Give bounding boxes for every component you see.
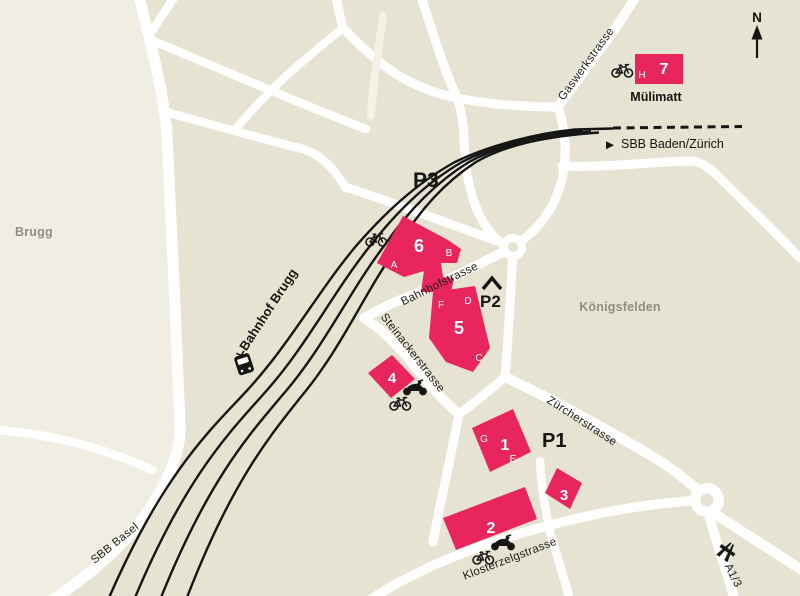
parking-label-p2: P2 [480, 292, 501, 311]
area-label-koenigsfelden: Königsfelden [579, 300, 661, 314]
building-1-letter-e: E [510, 454, 517, 465]
building-5-letter-c: C [475, 353, 482, 364]
parking-label-p1: P1 [542, 430, 566, 452]
building-5-letter-d: D [464, 296, 471, 307]
area-label-muelimatt: Mülimatt [630, 90, 682, 104]
building-3-number: 3 [560, 487, 568, 504]
campus-map: 7 H 6 A B 5 F D C 4 1 G E 3 2 Bahnhofstr… [0, 0, 800, 596]
building-1-letter-g: G [480, 434, 488, 445]
building-6-letter-b: B [446, 248, 453, 259]
roundabout-large [690, 483, 724, 517]
area-label-brugg: Brugg [15, 225, 53, 239]
building-7-number: 7 [660, 61, 669, 78]
building-5-number: 5 [454, 318, 464, 338]
roundabout-small [500, 234, 526, 260]
sbb-baden-zuerich-direction: ▶ SBB Baden/Zürich [606, 137, 724, 151]
building-6-number: 6 [414, 236, 424, 256]
parking-label-p3: P3 [413, 169, 439, 192]
map-canvas: 7 H 6 A B 5 F D C 4 1 G E 3 2 Bahnhofstr… [0, 0, 800, 596]
building-5-letter-f: F [438, 300, 444, 311]
sbb-baden-zuerich-label: SBB Baden/Zürich [621, 137, 724, 151]
building-7-letter-h: H [638, 70, 645, 81]
building-6-letter-a: A [391, 260, 398, 271]
building-2-number: 2 [487, 520, 496, 537]
direction-marker-icon: ▶ [606, 139, 615, 151]
north-label: N [752, 10, 762, 25]
building-4-number: 4 [388, 370, 397, 387]
building-1-number: 1 [501, 437, 510, 454]
